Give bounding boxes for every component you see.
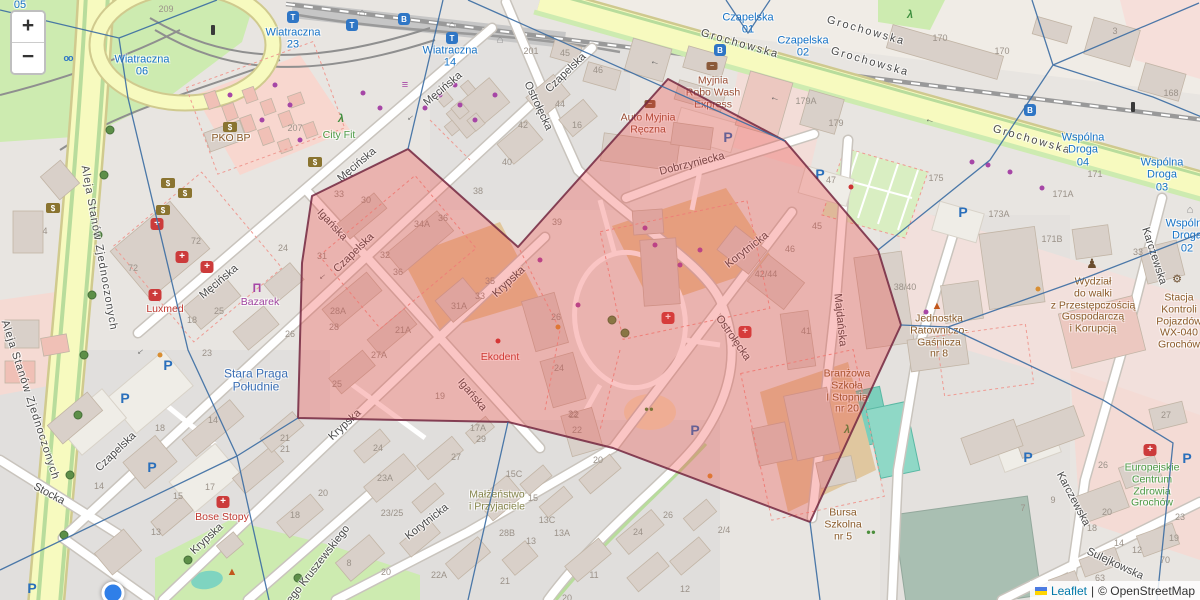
osm-attribution[interactable]: © OpenStreetMap [1098, 584, 1195, 598]
leaflet-link[interactable]: Leaflet [1051, 584, 1087, 598]
map-canvas[interactable]: PPPPPPPPPP++++++++$$$$$$TTBBBTooλλλ●●●●▲… [0, 0, 1200, 600]
map-base-tiles [0, 0, 1200, 600]
zoom-out-button[interactable]: − [12, 43, 44, 73]
location-marker [102, 582, 125, 600]
zoom-in-button[interactable]: + [12, 12, 44, 43]
zoom-control: + − [10, 10, 46, 75]
ukraine-flag-icon [1035, 587, 1047, 595]
attribution-bar: Leaflet | © OpenStreetMap [1030, 581, 1200, 600]
attribution-separator: | [1091, 584, 1094, 598]
